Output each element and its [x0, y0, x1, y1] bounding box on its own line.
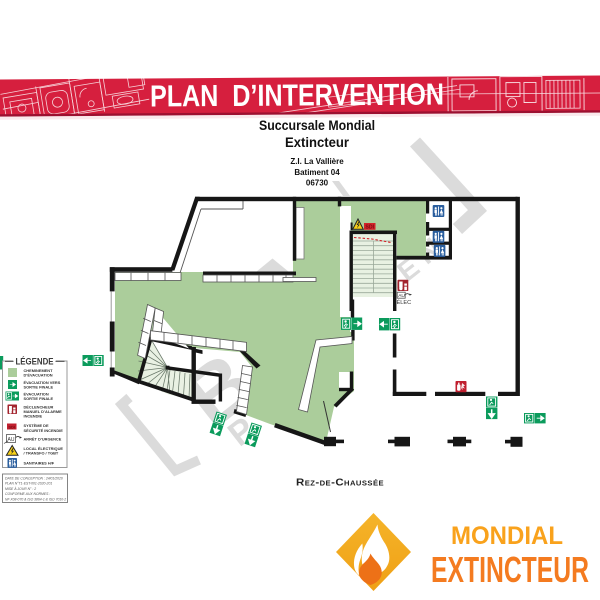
svg-text:MONDIAL: MONDIAL	[451, 522, 563, 550]
svg-text:MISE À JOUR N° : 2: MISE À JOUR N° : 2	[5, 487, 36, 491]
svg-text:ÉLEC: ÉLEC	[397, 299, 412, 306]
svg-text:Z.I. La Vallière: Z.I. La Vallière	[290, 157, 344, 166]
svg-text:EXTINCTEUR: EXTINCTEUR	[431, 549, 589, 590]
svg-text:PLAN D’INTERVENTION: PLAN D’INTERVENTION	[150, 78, 444, 114]
svg-text:SORTIE FINALE: SORTIE FINALE	[24, 396, 54, 401]
svg-text:ARRÊT D’URGENCE: ARRÊT D’URGENCE	[24, 437, 62, 442]
svg-text:DATE DE CONCEPTION : 24/01/202: DATE DE CONCEPTION : 24/01/2020	[5, 477, 63, 481]
svg-text:/ TRANSFO / TGBT: / TRANSFO / TGBT	[24, 450, 59, 455]
svg-text:SDI: SDI	[8, 424, 15, 429]
svg-text:Batiment 04: Batiment 04	[294, 168, 340, 177]
svg-text:Extincteur: Extincteur	[285, 134, 350, 150]
svg-text:AU: AU	[398, 293, 405, 299]
svg-text:CONFORME AUX NORMES :: CONFORME AUX NORMES :	[5, 492, 50, 496]
svg-text:SANITAIRES H/F: SANITAIRES H/F	[24, 461, 55, 466]
svg-text:Rez-de-Chaussée: Rez-de-Chaussée	[296, 477, 384, 489]
svg-text:LÉGENDE: LÉGENDE	[16, 357, 54, 368]
svg-text:SÉCURITÉ INCENDIE: SÉCURITÉ INCENDIE	[24, 428, 64, 433]
svg-text:SORTIE FINALE: SORTIE FINALE	[24, 385, 54, 390]
svg-text:D’ÉVACUATION: D’ÉVACUATION	[24, 372, 53, 377]
svg-text:06730: 06730	[306, 179, 329, 188]
svg-text:AU: AU	[8, 437, 15, 443]
svg-text:NF X08-070 & ISO 3864-1 & ISO: NF X08-070 & ISO 3864-1 & ISO 7010-2	[5, 497, 66, 501]
svg-text:Succursale Mondial: Succursale Mondial	[259, 117, 375, 133]
svg-text:PLAN N°T1-EST-001-2020-201: PLAN N°T1-EST-001-2020-201	[5, 482, 52, 486]
svg-text:INCENDIE: INCENDIE	[24, 414, 43, 419]
svg-text:SDI: SDI	[365, 225, 374, 231]
